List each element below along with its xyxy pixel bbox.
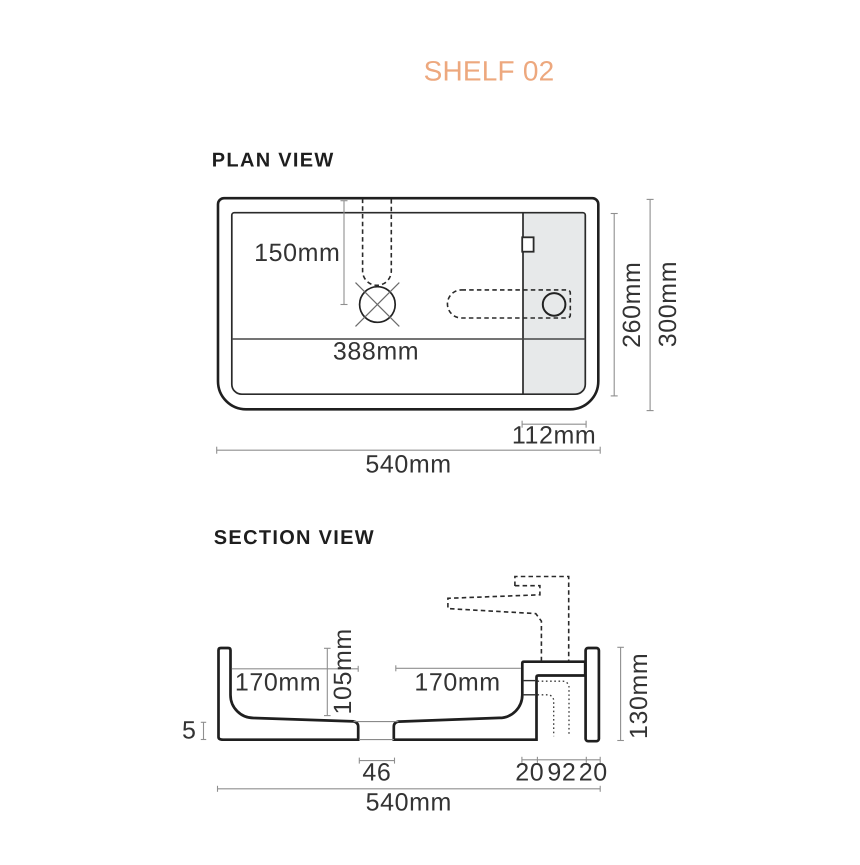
svg-text:150mm: 150mm <box>254 239 340 267</box>
svg-text:46: 46 <box>362 758 391 786</box>
svg-text:170mm: 170mm <box>235 669 321 697</box>
svg-text:112mm: 112mm <box>512 422 597 450</box>
svg-text:20: 20 <box>579 759 608 787</box>
svg-text:5: 5 <box>182 717 197 745</box>
svg-text:260mm: 260mm <box>618 262 646 348</box>
svg-text:92: 92 <box>547 759 576 787</box>
svg-text:540mm: 540mm <box>366 789 452 817</box>
svg-text:130mm: 130mm <box>625 653 653 739</box>
svg-text:388mm: 388mm <box>333 338 419 366</box>
svg-text:PLAN VIEW: PLAN VIEW <box>212 150 335 172</box>
svg-text:20: 20 <box>515 759 544 787</box>
svg-text:SHELF 02: SHELF 02 <box>424 56 555 87</box>
svg-text:105mm: 105mm <box>329 628 357 714</box>
svg-text:170mm: 170mm <box>414 669 500 697</box>
svg-text:SECTION VIEW: SECTION VIEW <box>214 527 375 549</box>
svg-text:540mm: 540mm <box>365 450 451 478</box>
svg-text:300mm: 300mm <box>654 261 682 347</box>
